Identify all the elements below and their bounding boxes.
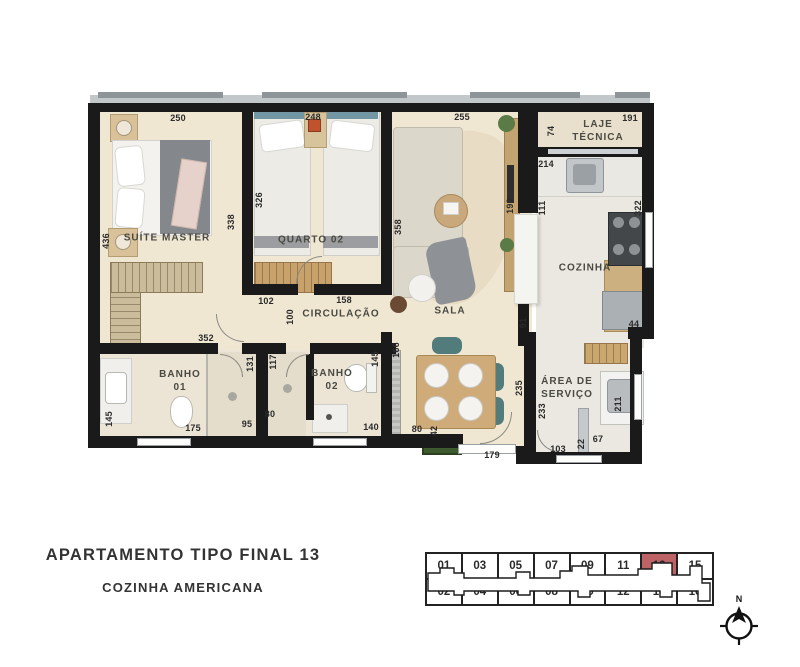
- room-label-banho-02: BANHO 02: [297, 367, 367, 393]
- pillow: [114, 187, 145, 229]
- wall: [256, 343, 268, 448]
- room-label-suite-master: SUÍTE MASTER: [102, 232, 232, 245]
- keyplan-unit-15[interactable]: 15: [677, 553, 713, 579]
- burner: [629, 217, 640, 228]
- sofa: [393, 127, 463, 251]
- keyplan-unit-12[interactable]: 12: [605, 579, 641, 605]
- wall: [518, 103, 538, 213]
- window-frame: [470, 92, 580, 98]
- room-label-laje-tecnica: LAJE TÉCNICA: [558, 118, 638, 144]
- plate: [424, 363, 449, 388]
- plate: [458, 363, 483, 388]
- dim-servico-door: 22: [576, 439, 586, 449]
- keyplan-unit-11[interactable]: 11: [605, 553, 641, 579]
- plant: [498, 115, 515, 132]
- window: [556, 455, 602, 463]
- wall: [242, 284, 298, 295]
- closet: [110, 292, 141, 348]
- wall: [88, 103, 100, 448]
- dim-banho2-width: 140: [363, 422, 379, 432]
- plate: [424, 396, 449, 421]
- keyplan-unit-03[interactable]: 03: [462, 553, 498, 579]
- wall: [310, 343, 396, 354]
- dim-cozinha-left: 111: [537, 201, 547, 216]
- page-subtitle: COZINHA AMERICANA: [23, 580, 343, 595]
- keyplan-unit-06[interactable]: 06: [498, 579, 534, 605]
- keyplan-unit-14[interactable]: 14: [641, 579, 677, 605]
- island-counter: [514, 214, 538, 304]
- dim-banho1-inner: 131: [245, 356, 255, 372]
- dim-servico-side: 233: [537, 403, 547, 419]
- dim-fridge-gap: 44: [629, 319, 639, 329]
- wall: [381, 434, 463, 448]
- nightstand-lamp: [116, 120, 132, 136]
- dim-laje-depth: 74: [546, 126, 556, 136]
- dim-sala-width: 255: [454, 112, 470, 122]
- plant: [500, 238, 514, 252]
- window: [313, 438, 367, 446]
- dim-banho2-side: 145: [370, 351, 380, 367]
- closet: [110, 262, 203, 293]
- coffee-table-book: [443, 202, 459, 215]
- shower-glass: [206, 352, 208, 438]
- dim-counter: 190: [505, 198, 515, 214]
- dim-banho2-wall: 117: [268, 354, 278, 369]
- room-label-area-servico: ÁREA DE SERVIÇO: [527, 375, 607, 401]
- window-frame: [98, 92, 223, 98]
- dim-servico-right: 211: [613, 396, 623, 411]
- dim-cozinha-top: 214: [538, 159, 554, 169]
- window: [137, 438, 191, 446]
- keyplan-unit-01[interactable]: 01: [426, 553, 462, 579]
- dim-cozinha-wall: 91: [518, 318, 528, 328]
- dim-banho1-side: 145: [104, 411, 114, 427]
- vase: [408, 274, 436, 302]
- room-label-quarto-02: QUARTO 02: [256, 234, 366, 247]
- room-label-circulacao: CIRCULAÇÃO: [276, 308, 406, 321]
- compass-north-label: N: [736, 594, 743, 604]
- burner: [613, 217, 624, 228]
- wall: [381, 103, 392, 295]
- pillow: [114, 145, 146, 188]
- kitchen-sink-basin: [573, 164, 596, 185]
- dim-shower2: 80: [265, 409, 275, 419]
- toilet-tank: [366, 363, 377, 393]
- dim-banho1-width: 175: [185, 423, 201, 433]
- dim-banho-span: 352: [198, 333, 214, 343]
- page-title: APARTAMENTO TIPO FINAL 13: [23, 546, 343, 565]
- burner: [613, 244, 624, 255]
- dim-servico-wall: 235: [514, 380, 524, 396]
- shelf: [584, 343, 628, 364]
- dim-cozinha-right: 322: [633, 200, 643, 216]
- pillow: [328, 119, 375, 152]
- dim-servico-step: 67: [593, 434, 603, 444]
- keyplan-unit-08[interactable]: 08: [534, 579, 570, 605]
- dim-sala-side: 358: [393, 219, 403, 235]
- keyplan-unit-02[interactable]: 02: [426, 579, 462, 605]
- dim-quarto-width: 248: [305, 112, 321, 122]
- shower-drain: [283, 384, 292, 393]
- keyplan-unit-09[interactable]: 09: [570, 553, 606, 579]
- dim-dining: 80: [412, 424, 422, 434]
- dim-niche: 42: [429, 426, 439, 436]
- dim-suite-width: 250: [170, 113, 186, 123]
- compass-icon: N: [713, 590, 765, 652]
- wall: [242, 103, 253, 295]
- bath-sink-dot: [326, 414, 332, 420]
- floor-plan: 250 248 255 191 74 436 338 326 358 214 1…: [0, 0, 800, 500]
- dim-quarto-side: 326: [254, 192, 264, 208]
- room-label-cozinha: COZINHA: [540, 262, 630, 275]
- shower-drain: [228, 392, 237, 401]
- dim-suite-wall: 338: [226, 214, 236, 230]
- keyplan-unit-07[interactable]: 07: [534, 553, 570, 579]
- window: [645, 212, 653, 268]
- dining-chair: [432, 337, 462, 354]
- dim-passage: 166: [391, 342, 401, 358]
- wall: [88, 103, 652, 112]
- wall: [516, 446, 536, 464]
- keyplan-grid: 01 03 05 07 09 11 13 15 02 04 06 08 10 1…: [425, 552, 714, 606]
- caption-block: APARTAMENTO TIPO FINAL 13 COZINHA AMERIC…: [23, 546, 343, 595]
- burner: [629, 244, 640, 255]
- keyplan-unit-05[interactable]: 05: [498, 553, 534, 579]
- dim-shower1: 95: [242, 419, 252, 429]
- window-frame: [615, 92, 650, 98]
- floor-plan-page: 250 248 255 191 74 436 338 326 358 214 1…: [0, 0, 800, 667]
- dim-servico-width: 103: [550, 444, 566, 454]
- window: [634, 374, 642, 420]
- laje-sill: [548, 149, 638, 154]
- keyplan-unit-10[interactable]: 10: [570, 579, 606, 605]
- wall: [100, 343, 218, 354]
- dim-entry: 179: [484, 450, 500, 460]
- keyplan-unit-04[interactable]: 04: [462, 579, 498, 605]
- dim-door-left: 102: [258, 296, 274, 306]
- bath-sink: [105, 372, 127, 404]
- dim-door-right: 158: [336, 295, 352, 305]
- keyplan-unit-16[interactable]: 16: [677, 579, 713, 605]
- window-frame: [262, 92, 407, 98]
- room-label-sala: SALA: [415, 305, 485, 318]
- keyplan-unit-13-selected[interactable]: 13: [641, 553, 677, 579]
- ironing-board: [578, 408, 589, 458]
- room-label-banho-01: BANHO 01: [145, 368, 215, 394]
